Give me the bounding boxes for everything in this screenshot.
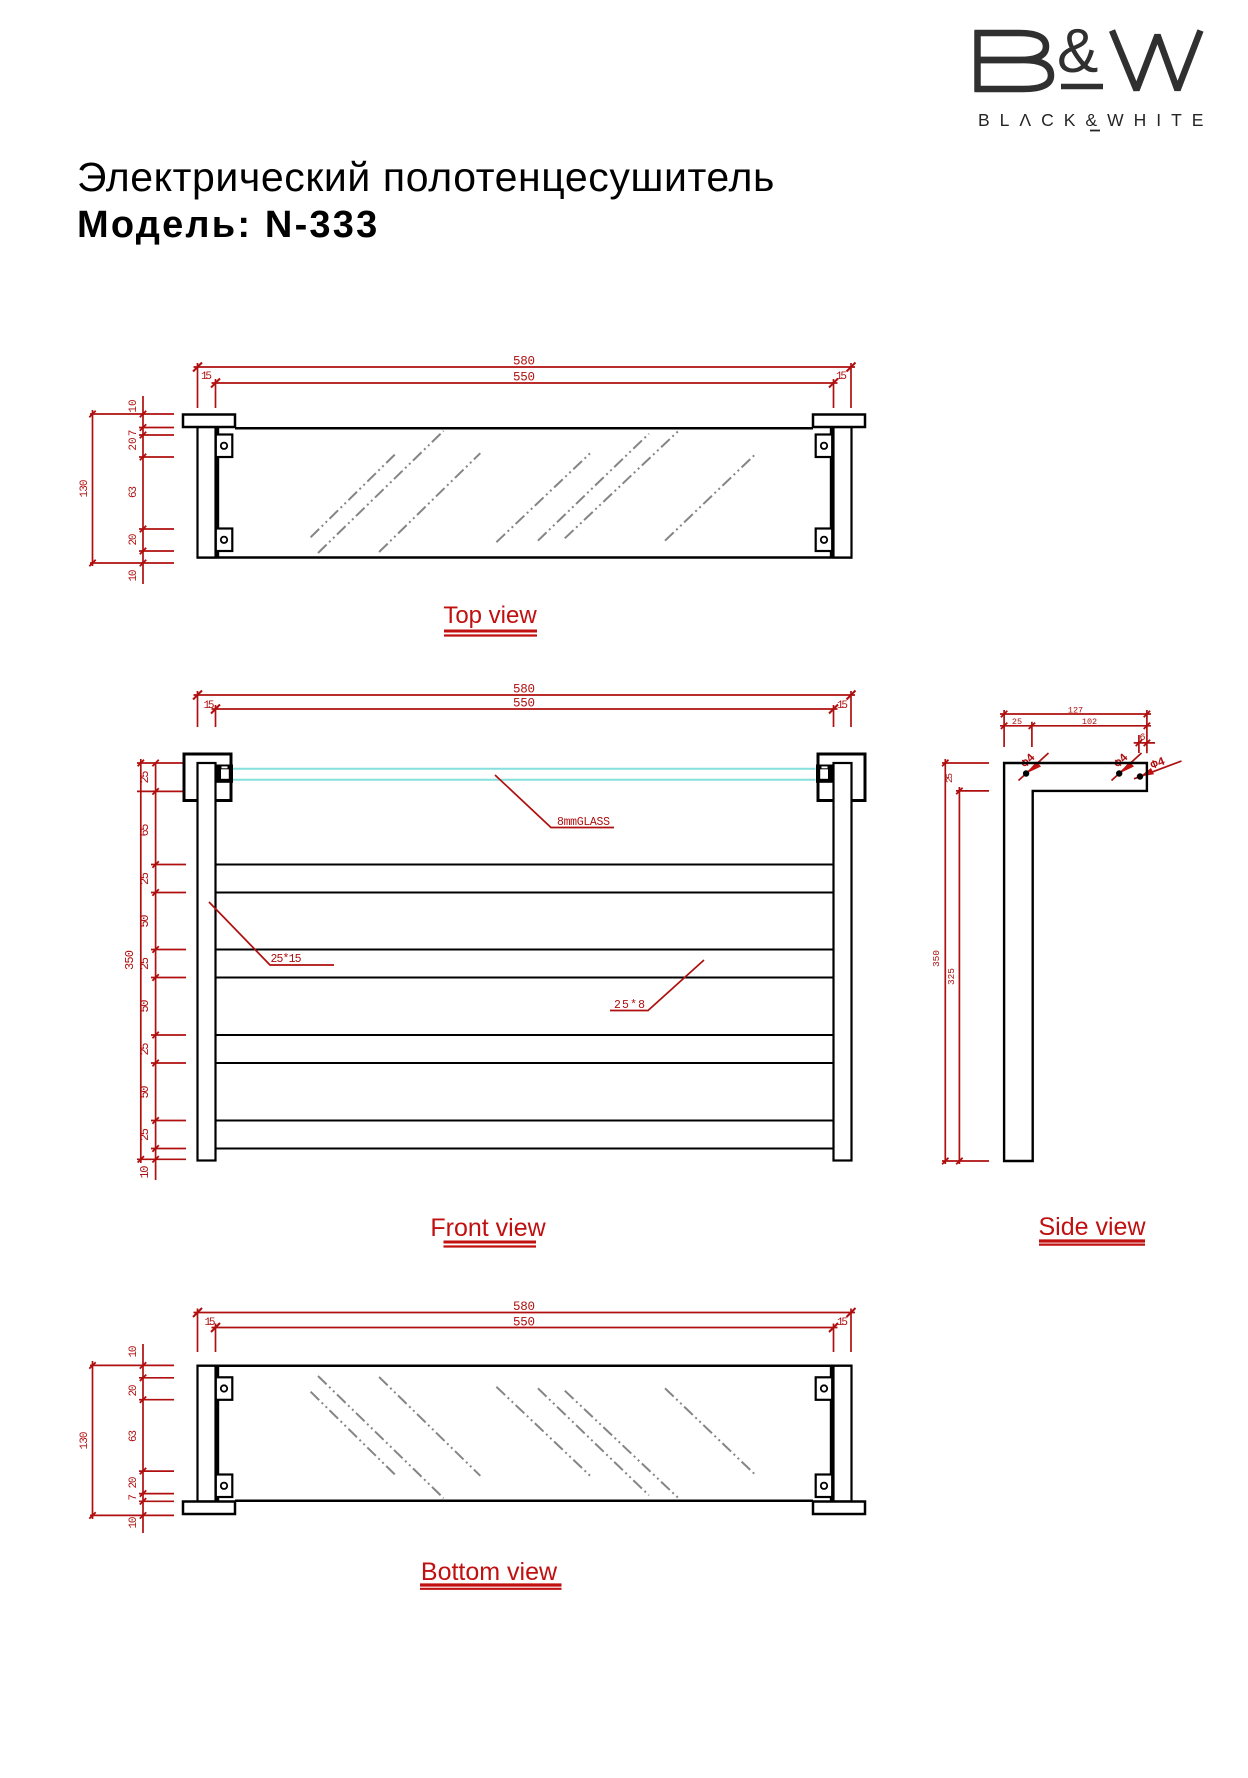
svg-text:15: 15: [837, 700, 848, 712]
svg-text:550: 550: [513, 697, 535, 711]
svg-text:10: 10: [128, 570, 140, 582]
svg-text:50: 50: [138, 1086, 152, 1099]
svg-text:102: 102: [1082, 717, 1097, 727]
svg-text:550: 550: [513, 1316, 535, 1330]
svg-text:Электрический полотенцесушител: Электрический полотенцесушитель: [77, 154, 775, 200]
svg-text:Модель: N-333: Модель: N-333: [77, 204, 379, 246]
svg-text:15: 15: [204, 700, 215, 712]
svg-text:20: 20: [128, 1385, 140, 1397]
svg-text:130: 130: [79, 1432, 91, 1450]
svg-text:127: 127: [1068, 706, 1083, 716]
svg-text:Bottom view: Bottom view: [421, 1558, 558, 1586]
svg-text:25: 25: [138, 1043, 152, 1056]
svg-text:Front view: Front view: [430, 1214, 546, 1242]
svg-text:15: 15: [205, 1317, 216, 1329]
svg-text:350: 350: [123, 950, 137, 970]
svg-text:25*15: 25*15: [271, 953, 302, 966]
svg-text:25: 25: [1012, 717, 1022, 727]
svg-text:10: 10: [128, 1517, 140, 1529]
svg-text:50: 50: [138, 915, 152, 928]
svg-text:63: 63: [128, 486, 140, 498]
svg-text:580: 580: [513, 355, 535, 369]
svg-text:130: 130: [79, 480, 91, 498]
svg-text:Side view: Side view: [1039, 1213, 1147, 1241]
svg-text:10: 10: [128, 399, 140, 412]
svg-text:20: 20: [128, 437, 140, 450]
svg-text:350: 350: [931, 950, 942, 967]
svg-text:&: &: [1057, 17, 1098, 86]
svg-text:550: 550: [513, 371, 535, 385]
svg-text:20: 20: [128, 1477, 140, 1489]
svg-text:25: 25: [138, 872, 152, 885]
svg-text:15: 15: [836, 371, 847, 383]
svg-text:580: 580: [513, 1300, 535, 1314]
svg-text:7: 7: [128, 1494, 140, 1501]
svg-text:BLΛCK&WHITE: BLΛCK&WHITE: [978, 110, 1213, 130]
svg-text:15: 15: [837, 1317, 848, 1329]
svg-text:Top view: Top view: [443, 602, 537, 629]
svg-text:65: 65: [138, 824, 152, 837]
svg-text:25: 25: [138, 957, 152, 970]
svg-text:15: 15: [201, 371, 212, 383]
svg-text:20: 20: [128, 534, 140, 546]
svg-text:580: 580: [513, 683, 535, 697]
svg-text:63: 63: [128, 1430, 140, 1442]
svg-text:7: 7: [128, 430, 140, 437]
svg-text:10: 10: [138, 1166, 152, 1179]
svg-text:25: 25: [138, 1128, 152, 1141]
svg-text:50: 50: [138, 1000, 152, 1013]
svg-text:25: 25: [944, 773, 955, 783]
svg-text:25: 25: [138, 771, 152, 784]
svg-text:10: 10: [128, 1346, 140, 1358]
svg-text:6: 6: [1139, 733, 1145, 744]
svg-text:325: 325: [946, 968, 957, 985]
